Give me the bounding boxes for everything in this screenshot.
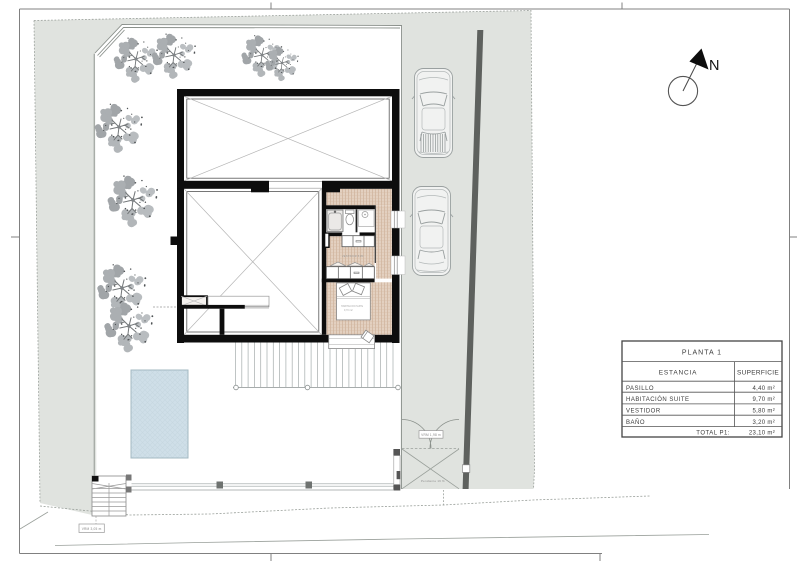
svg-text:9,70 m²: 9,70 m² [753,397,775,403]
svg-text:VRM 1,98 m: VRM 1,98 m [421,433,441,437]
svg-text:9,70 m2: 9,70 m2 [344,309,353,312]
svg-text:4,40 m²: 4,40 m² [753,386,775,392]
svg-text:HABITACION SUITE: HABITACION SUITE [341,305,364,308]
svg-text:3,20 m²: 3,20 m² [753,420,775,426]
svg-text:23,10 m²: 23,10 m² [749,431,775,437]
svg-text:ESTANCIA: ESTANCIA [659,370,697,377]
svg-text:BAÑO: BAÑO [626,419,645,426]
svg-text:Pendiente 16 %: Pendiente 16 % [421,479,445,483]
svg-text:TOTAL P1:: TOTAL P1: [696,431,730,437]
svg-text:VESTIDOR 5,80: VESTIDOR 5,80 [342,254,364,258]
svg-text:PASILLO: PASILLO [626,386,654,392]
svg-text:VESTIDOR: VESTIDOR [626,408,661,414]
svg-text:PLANTA 1: PLANTA 1 [682,350,722,357]
svg-text:HABITACIÓN SUITE: HABITACIÓN SUITE [626,396,690,403]
svg-text:5,80 m²: 5,80 m² [753,408,775,414]
svg-text:VRM 3,05 m: VRM 3,05 m [82,527,102,531]
svg-text:SUPERFICIE: SUPERFICIE [737,370,779,377]
svg-text:N: N [709,58,719,74]
